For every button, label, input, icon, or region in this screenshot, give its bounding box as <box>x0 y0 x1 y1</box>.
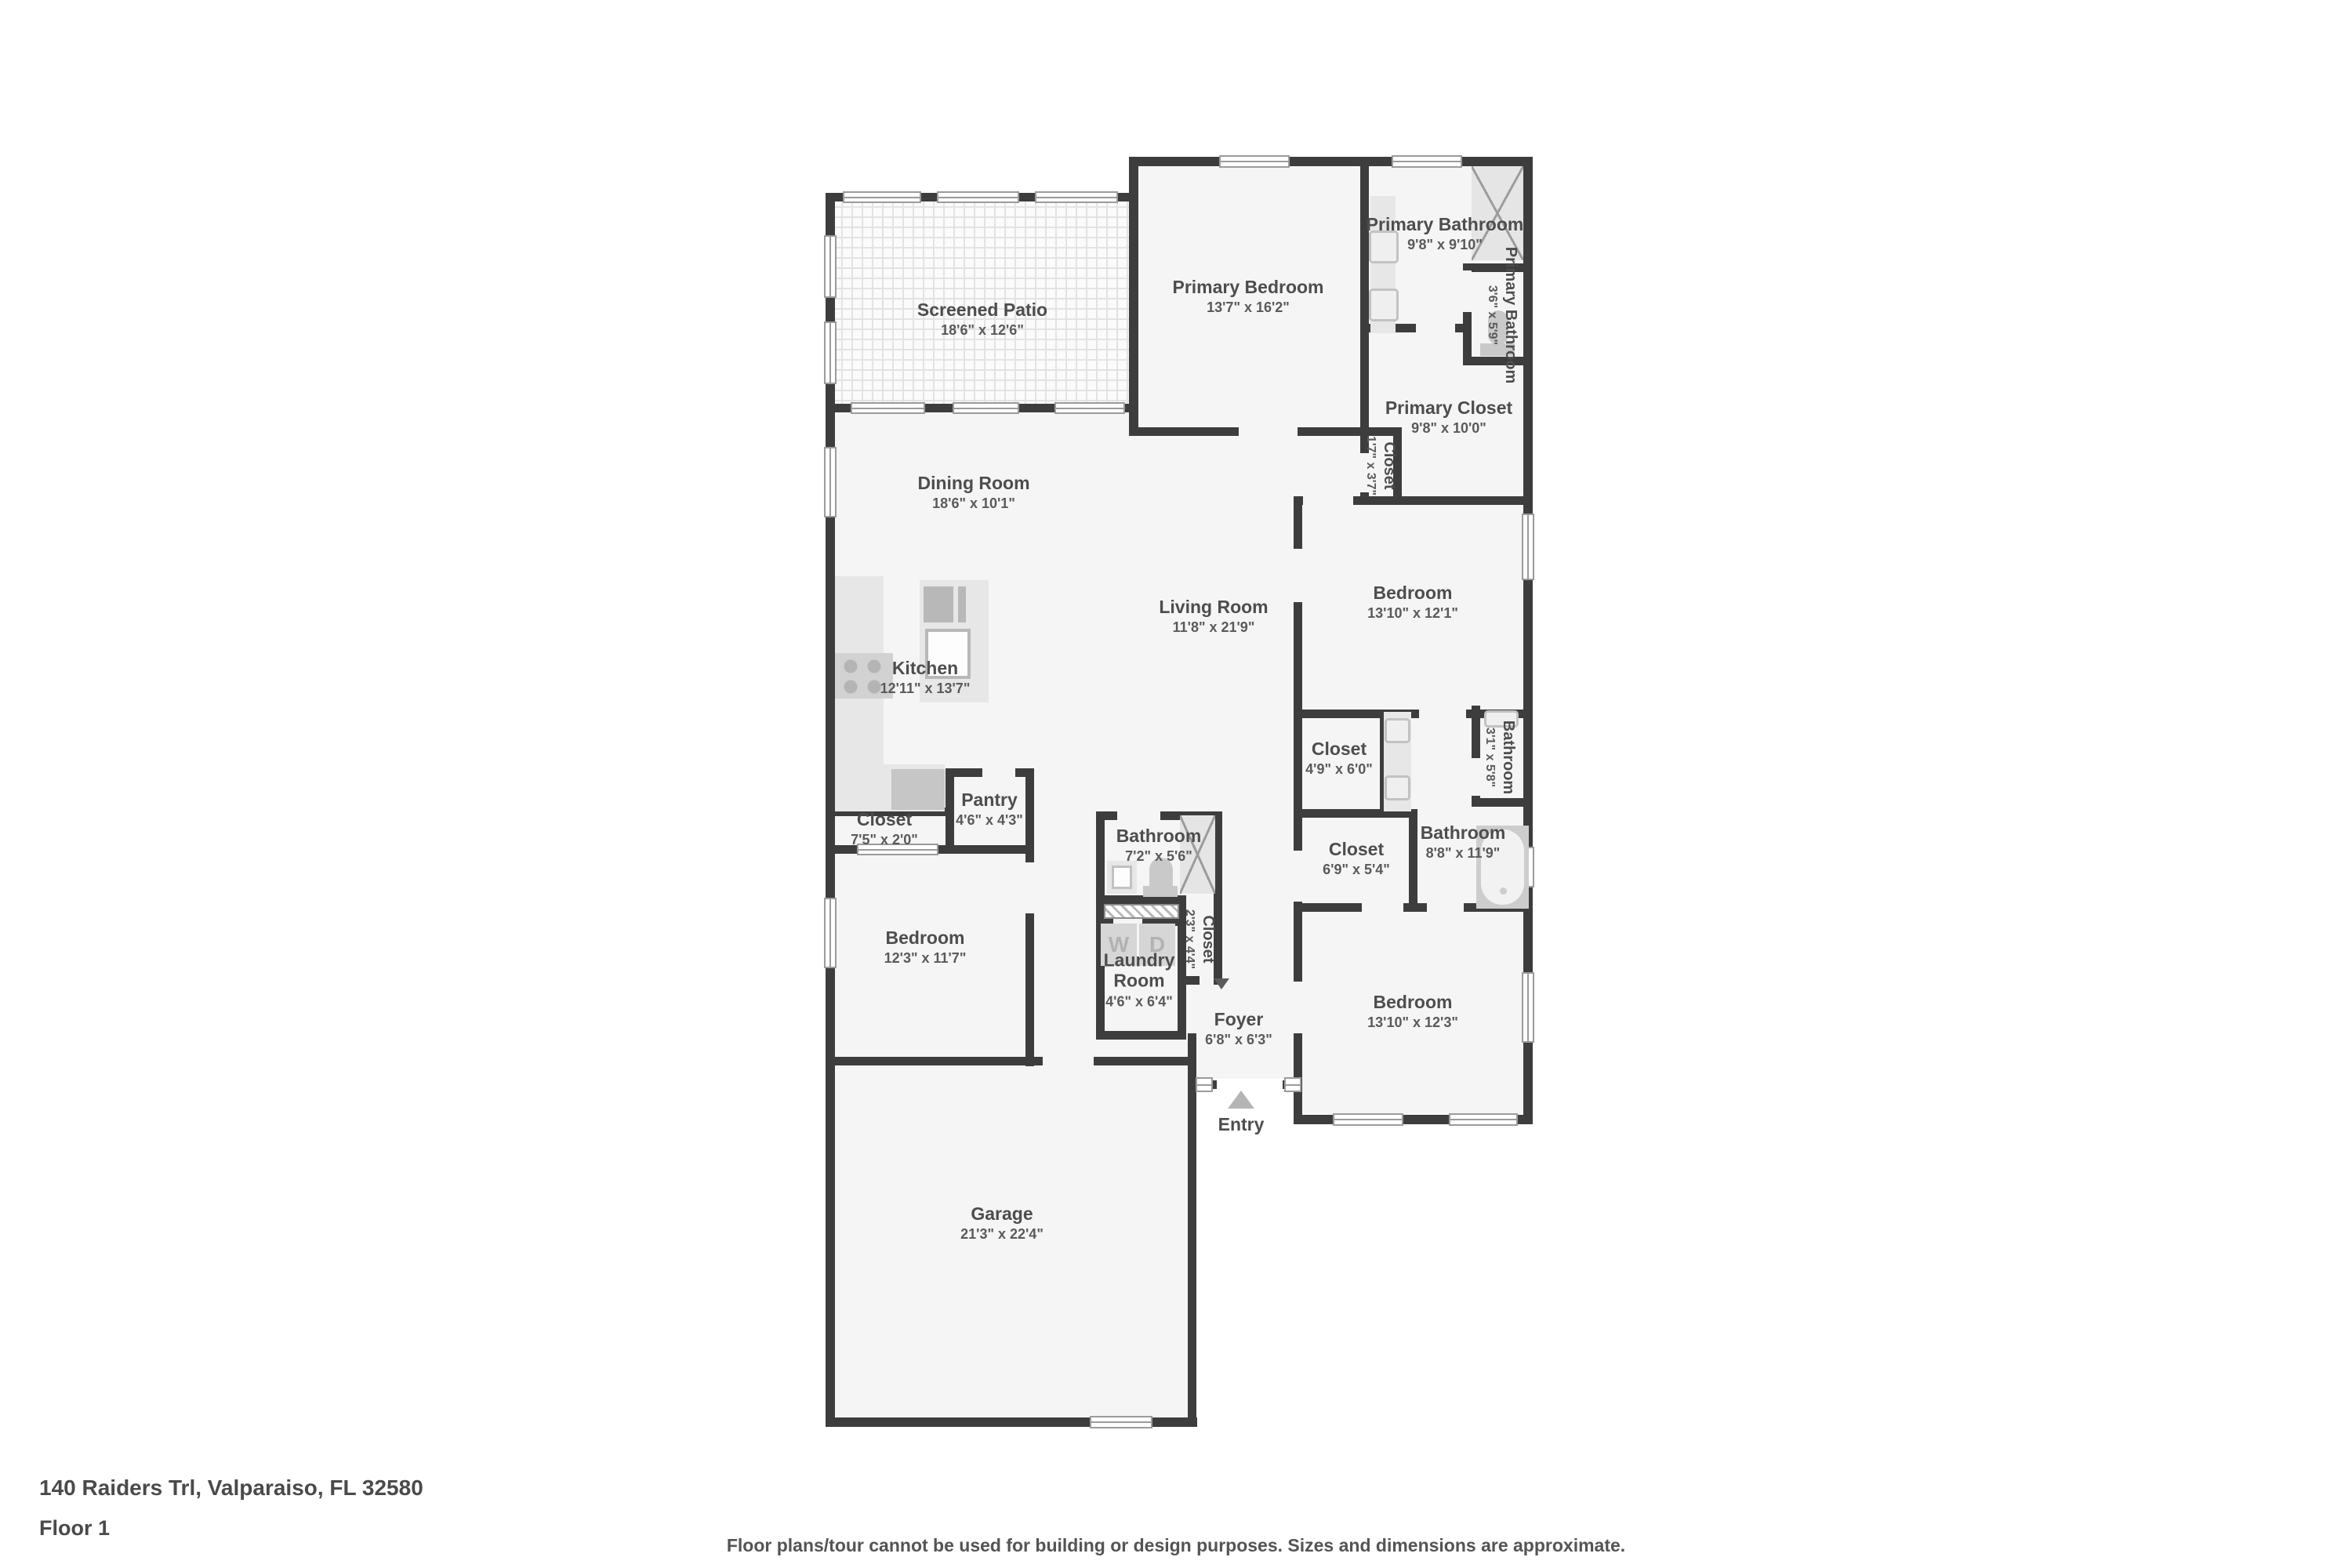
room-label-primary-bathroom-wc: Primary Bathroom3'6" x 5'9" <box>1485 247 1519 384</box>
door-primary-bath-to-closet <box>1416 322 1455 334</box>
room-label-closet-left: Closet7'5" x 2'0" <box>851 809 918 848</box>
closet-door-arrow-icon <box>1214 978 1229 989</box>
room-label-bedroom-left: Bedroom12'3" x 11'7" <box>884 927 967 967</box>
footer-address: 140 Raiders Trl, Valparaiso, FL 32580 <box>39 1475 423 1501</box>
window-garage-bottom <box>1090 1416 1152 1428</box>
wall-bathroom88-left <box>1409 809 1417 912</box>
wall-garage-right <box>1188 1033 1196 1427</box>
room-label-closet-hall: Closet1'7" x 3'7" <box>1363 436 1398 495</box>
window-dining-patio-2 <box>953 402 1019 414</box>
opening-corridor-bath <box>1419 708 1466 720</box>
window-dining-patio-3 <box>1054 402 1125 414</box>
wall-top-exterior <box>1129 157 1533 166</box>
window-primary-bath-top <box>1392 155 1462 168</box>
room-label-dining-room: Dining Room18'6" x 10'1" <box>917 473 1029 512</box>
wall-laundry-bottom <box>1096 1031 1186 1040</box>
door-bath-small-right <box>1472 758 1480 796</box>
window-primary-bedroom-top <box>1219 155 1290 168</box>
door-bathroom-center <box>1117 810 1160 822</box>
window-bedroom2-bottom-1 <box>1333 1113 1403 1126</box>
window-bedroom2-right <box>1522 972 1534 1043</box>
room-label-garage: Garage21'3" x 22'4" <box>960 1203 1044 1243</box>
window-patio-top-1 <box>843 191 921 203</box>
entry-label: Entry <box>1218 1114 1265 1134</box>
vanity-sink-2-icon <box>1385 775 1410 800</box>
window-patio-left-1 <box>824 235 837 298</box>
window-bedroom2-bottom-2 <box>1449 1113 1518 1126</box>
door-primary-wc <box>1463 270 1472 312</box>
room-label-bedroom-right: Bedroom13'10" x 12'1" <box>1367 583 1458 622</box>
room-label-kitchen: Kitchen12'11" x 13'7" <box>880 658 971 697</box>
room-label-bathroom-center: Bathroom7'2" x 5'6" <box>1116 826 1202 865</box>
wall-bedroom-left-right <box>1025 768 1034 1066</box>
room-label-screened-patio: Screened Patio18'6" x 12'6" <box>917 299 1047 339</box>
floorplan-page: { "rooms": { "screened_patio": {"name": … <box>0 0 2352 1568</box>
room-label-pantry: Pantry4'6" x 4'3" <box>956 789 1023 829</box>
opening-closet-hall <box>1303 495 1353 506</box>
room-label-bathroom-small-right: Bathroom3'1" x 5'8" <box>1483 720 1517 794</box>
primary-sink-2-icon <box>1369 289 1399 321</box>
door-garage <box>1043 1055 1094 1067</box>
wall-bath-small-right-bottom <box>1472 798 1532 807</box>
room-label-bedroom-bottom-right: Bedroom13'10" x 12'3" <box>1367 992 1458 1031</box>
window-bedroom-left <box>824 898 837 968</box>
opening-bath-hall <box>1294 851 1302 902</box>
window-patio-top-3 <box>1035 191 1118 203</box>
room-label-foyer: Foyer6'8" x 6'3" <box>1205 1009 1272 1048</box>
door-bathroom88 <box>1427 902 1464 913</box>
center-toilet-tank-icon <box>1143 886 1178 897</box>
entry-sidelight-left <box>1196 1077 1213 1092</box>
window-bedroom1-right <box>1522 514 1534 580</box>
room-label-laundry-room: Laundry Room4'6" x 6'4" <box>1084 950 1194 1011</box>
kitchen-counter-bottom-dark <box>891 769 945 810</box>
door-closet69 <box>1362 902 1403 913</box>
room-label-primary-bedroom: Primary Bedroom13'7" x 16'2" <box>1172 277 1323 316</box>
hatch-area <box>1104 904 1179 919</box>
entry-arrow-icon <box>1228 1091 1254 1109</box>
door-bedroom2 <box>1294 982 1302 1033</box>
wall-garage-top <box>829 1057 1194 1065</box>
room-label-bathroom-right: Bathroom8'8" x 11'9" <box>1421 822 1506 862</box>
entry-sidelight-right <box>1284 1077 1301 1092</box>
bathtub-drain-icon <box>1500 887 1507 895</box>
door-pantry <box>982 767 1015 779</box>
room-label-closet-right-upper: Closet4'9" x 6'0" <box>1305 739 1373 778</box>
entry-door-opening <box>1217 1079 1283 1091</box>
footer-disclaimer: Floor plans/tour cannot be used for buil… <box>0 1535 2352 1556</box>
room-label-primary-closet: Primary Closet9'8" x 10'0" <box>1385 397 1512 437</box>
center-bath-cabinet-inner <box>1112 866 1132 889</box>
window-dining-left <box>824 447 837 517</box>
door-bedroom1 <box>1294 549 1302 602</box>
window-patio-top-2 <box>937 191 1019 203</box>
refrigerator-icon <box>924 586 966 622</box>
room-label-living-room: Living Room11'8" x 21'9" <box>1159 597 1268 636</box>
window-dining-patio-1 <box>851 402 925 414</box>
vanity-sink-1-icon <box>1385 718 1410 743</box>
room-label-closet-right-lower: Closet6'9" x 5'4" <box>1323 839 1390 878</box>
door-bedroom-left <box>1025 862 1034 913</box>
window-patio-left-2 <box>824 321 837 384</box>
door-primary-bedroom <box>1239 426 1298 437</box>
